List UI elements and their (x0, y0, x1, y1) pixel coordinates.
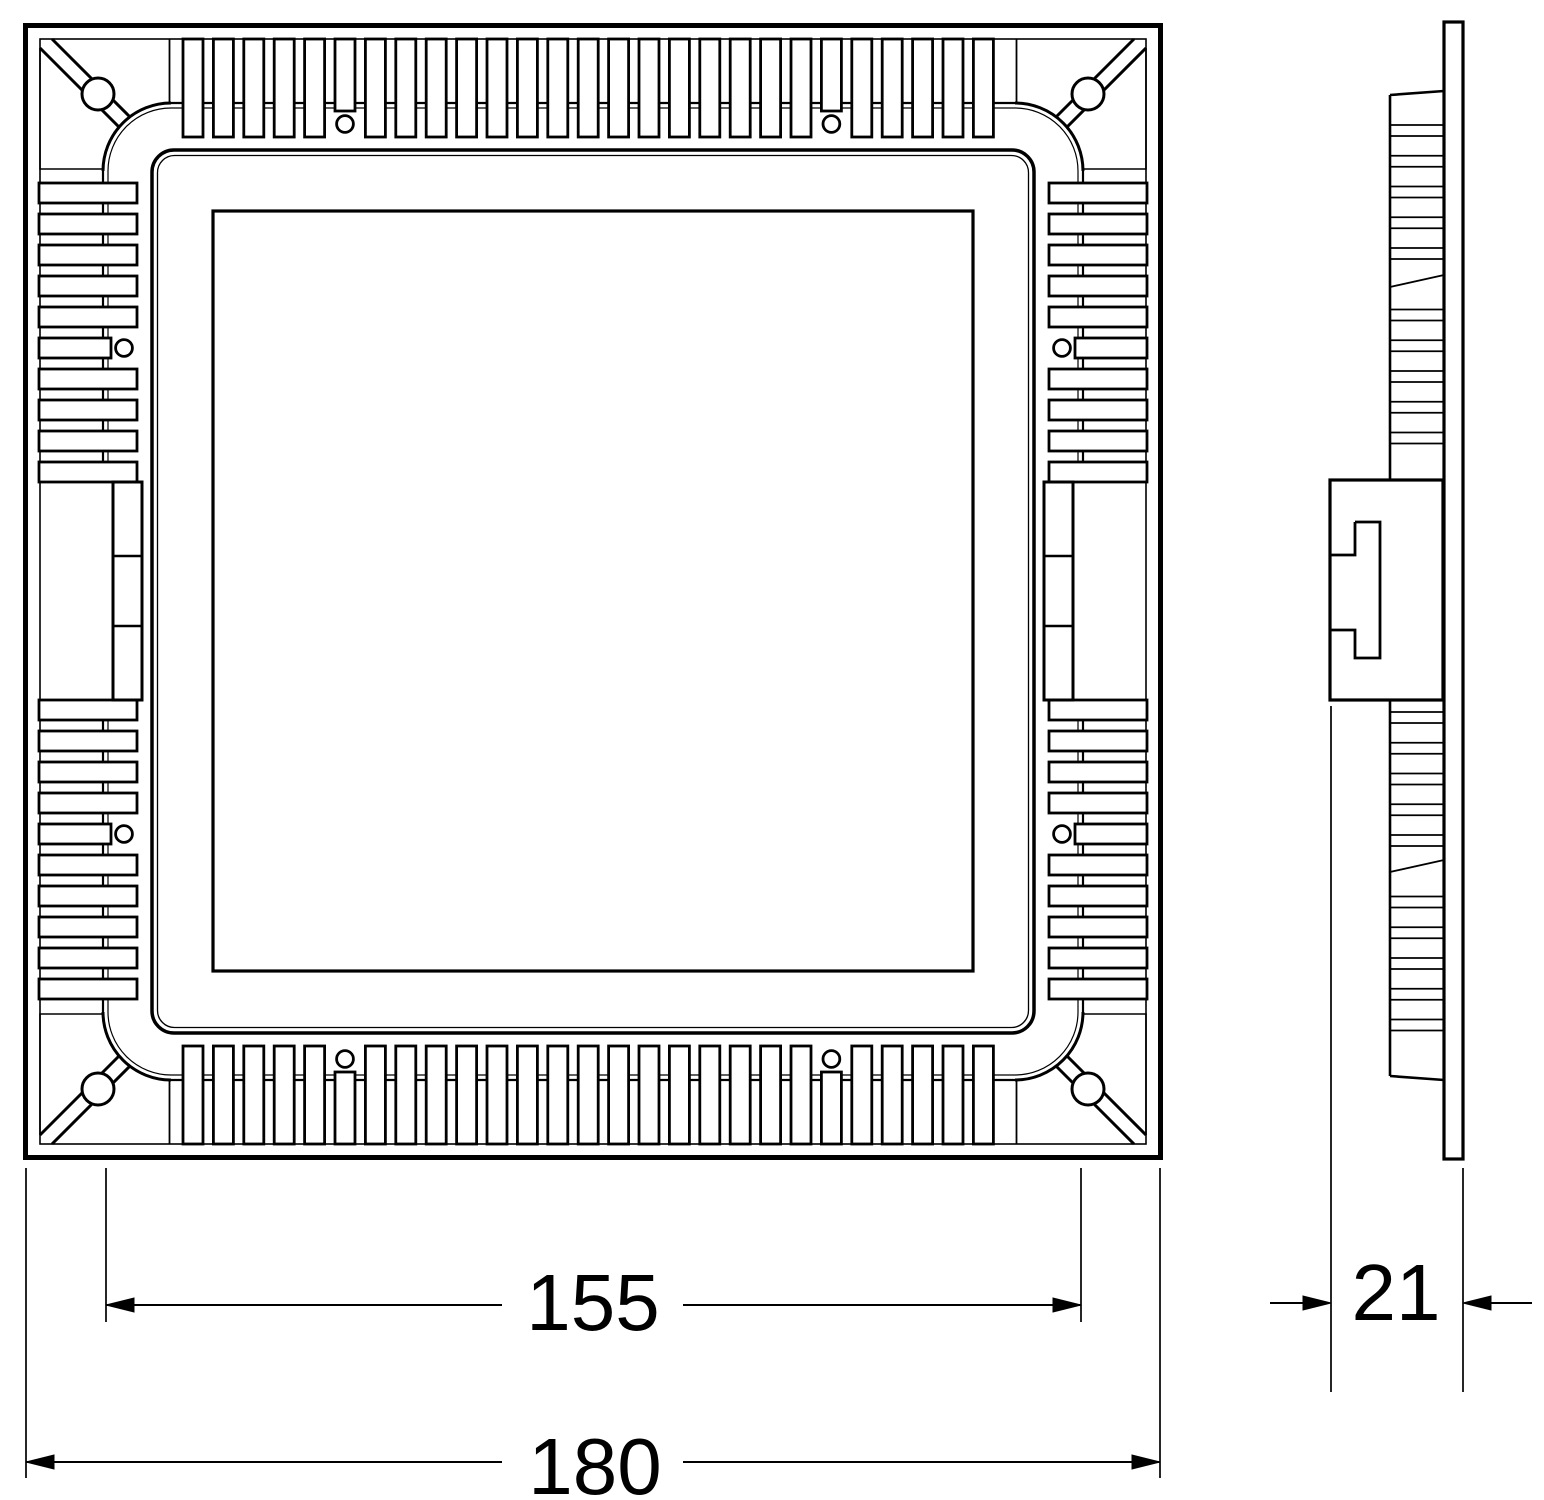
fin-slat (821, 1072, 841, 1144)
dim-155-label: 155 (526, 1258, 659, 1347)
mounting-hole (116, 826, 133, 843)
spring-pivot-circle (82, 78, 114, 110)
dimension-cutout-155: 155 (106, 1168, 1081, 1347)
fin-slat (244, 1046, 264, 1144)
fin-slat (39, 700, 137, 720)
fin-slat (39, 276, 137, 296)
side-mount-bracket (1330, 480, 1443, 700)
fin-rung-break (1390, 275, 1444, 287)
fin-slat (39, 183, 137, 203)
fin-slat (1049, 431, 1147, 451)
fin-slat (700, 1046, 720, 1144)
fin-slat (39, 731, 137, 751)
spring-pivot-circle (1072, 1073, 1104, 1105)
fin-slat (609, 1046, 629, 1144)
fin-slat (39, 462, 137, 482)
fin-slat (639, 39, 659, 137)
fin-slat (973, 1046, 993, 1144)
mounting-hole (1054, 340, 1071, 357)
fin-slat (244, 39, 264, 137)
corner-fillet-arc (1015, 103, 1083, 171)
fin-slat (39, 245, 137, 265)
fin-slat (609, 39, 629, 137)
fin-slat (457, 39, 477, 137)
fin-slat (39, 824, 111, 844)
fin-slat (457, 1046, 477, 1144)
fin-slat (1049, 245, 1147, 265)
mounting-hole (116, 340, 133, 357)
outer-flange-border (26, 26, 1161, 1158)
fin-slat (396, 1046, 416, 1144)
arrowhead-21-left (1303, 1296, 1331, 1310)
dim-21-label: 21 (1352, 1248, 1441, 1337)
side-fin-rungs (1390, 125, 1444, 1031)
fin-slat (274, 1046, 294, 1144)
fin-slat (1049, 762, 1147, 782)
fin-slat (1049, 307, 1147, 327)
fin-slat (39, 948, 137, 968)
fin-slat (517, 39, 537, 137)
fin-slat (213, 39, 233, 137)
mounting-slot (1044, 482, 1073, 700)
fin-slat (639, 1046, 659, 1144)
corner-fillet-arc (1015, 1012, 1083, 1080)
fin-slat (39, 855, 137, 875)
fin-slat (943, 1046, 963, 1144)
mounting-hole (823, 1051, 840, 1068)
fin-slat (39, 338, 111, 358)
fin-slat (1049, 700, 1147, 720)
fin-slat (821, 39, 841, 111)
fin-slat (213, 1046, 233, 1144)
dim-180-label: 180 (528, 1422, 661, 1500)
fin-field-top (171, 39, 1015, 137)
dimension-depth-21: 21 (1270, 706, 1532, 1392)
front-view (26, 26, 1161, 1158)
fin-slat (305, 1046, 325, 1144)
fin-slat (183, 1046, 203, 1144)
fin-slat (335, 39, 355, 111)
mounting-slot (113, 482, 142, 700)
fin-slat (700, 39, 720, 137)
fin-slat (791, 1046, 811, 1144)
arrowhead-180-right (1132, 1455, 1160, 1469)
fin-slat (396, 39, 416, 137)
fin-slat (913, 1046, 933, 1144)
corner-clip-top-right (1015, 39, 1146, 171)
fin-slat (39, 979, 137, 999)
fin-slat (39, 369, 137, 389)
mounting-hole (1054, 826, 1071, 843)
corner-clip-top-left (40, 39, 171, 171)
fin-slat (183, 39, 203, 137)
fin-slat (1049, 183, 1147, 203)
fin-slat (1049, 214, 1147, 234)
arrowhead-155-right (1053, 1298, 1081, 1312)
fin-rung-break (1390, 860, 1444, 872)
spring-pivot-circle (82, 1073, 114, 1105)
fin-slat (548, 39, 568, 137)
fin-slat (39, 886, 137, 906)
fin-slat (1049, 793, 1147, 813)
fin-slat (882, 1046, 902, 1144)
fin-field-left (39, 171, 142, 1012)
side-bracket-hook (1330, 522, 1380, 658)
corner-fillet-arc (103, 1012, 171, 1080)
corner-fillet-arc (103, 103, 171, 171)
fin-slat (1049, 855, 1147, 875)
fin-slat (39, 307, 137, 327)
fin-slat (487, 39, 507, 137)
fin-slat (517, 1046, 537, 1144)
fin-slat (730, 39, 750, 137)
inner-flange-line (40, 39, 1146, 1144)
mounting-hole (337, 1051, 354, 1068)
corner-clip-bottom-left (40, 1012, 171, 1144)
fin-slat (426, 1046, 446, 1144)
fin-slat (39, 431, 137, 451)
fin-slat (730, 1046, 750, 1144)
bezel-inner-edge (158, 156, 1029, 1028)
fin-slat (39, 214, 137, 234)
fin-slat (548, 1046, 568, 1144)
fin-slat (669, 39, 689, 137)
fin-slat (1049, 400, 1147, 420)
side-face-plate (1444, 22, 1463, 1159)
fin-slat (761, 1046, 781, 1144)
corner-clip-bottom-right (1015, 1012, 1146, 1144)
spring-pivot-circle (1072, 78, 1104, 110)
fin-slat (852, 1046, 872, 1144)
fin-slat (943, 39, 963, 137)
fin-slat (426, 39, 446, 137)
fin-slat (1049, 462, 1147, 482)
mounting-hole (823, 116, 840, 133)
fin-slat (335, 1072, 355, 1144)
fin-slat (274, 39, 294, 137)
fin-slat (1049, 948, 1147, 968)
fin-slat (669, 1046, 689, 1144)
fin-slat (761, 39, 781, 137)
fin-slat (913, 39, 933, 137)
fin-slat (882, 39, 902, 137)
fin-field-right (1044, 171, 1147, 1012)
fin-slat (39, 400, 137, 420)
fin-slat (487, 1046, 507, 1144)
drawing-canvas: 155 180 21 (0, 0, 1544, 1500)
fin-slat (1049, 731, 1147, 751)
side-view (1330, 22, 1463, 1159)
fin-slat (791, 39, 811, 137)
fin-slat (1075, 338, 1147, 358)
fin-slat (852, 39, 872, 137)
led-aperture (213, 211, 973, 971)
bezel-outer-edge (152, 150, 1034, 1033)
fin-slat (1049, 276, 1147, 296)
fin-slat (1049, 917, 1147, 937)
fin-slat (973, 39, 993, 137)
fin-slat (578, 39, 598, 137)
mounting-hole (337, 116, 354, 133)
arrowhead-180-left (26, 1455, 54, 1469)
fin-slat (1075, 824, 1147, 844)
fin-slat (1049, 886, 1147, 906)
fin-slat (39, 793, 137, 813)
fin-slat (39, 762, 137, 782)
side-body-outline (1390, 91, 1444, 1080)
fin-slat (578, 1046, 598, 1144)
fin-slat (1049, 979, 1147, 999)
fin-slat (39, 917, 137, 937)
fin-slat (365, 1046, 385, 1144)
fin-field-bottom (171, 1046, 1015, 1144)
fin-slat (305, 39, 325, 137)
arrowhead-21-right (1463, 1296, 1491, 1310)
technical-drawing: 155 180 21 (0, 0, 1544, 1500)
fin-slat (365, 39, 385, 137)
arrowhead-155-left (106, 1298, 134, 1312)
fin-slat (1049, 369, 1147, 389)
